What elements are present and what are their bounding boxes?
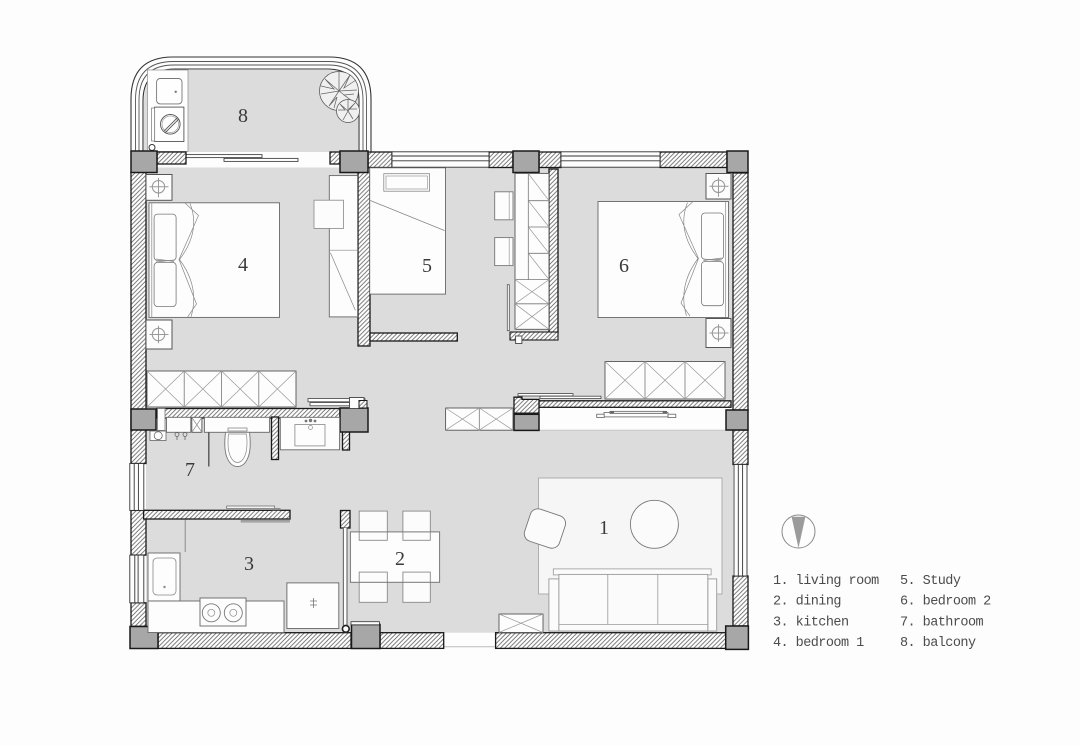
svg-text:2: 2	[395, 548, 405, 570]
svg-text:1. living room: 1. living room	[773, 574, 879, 589]
svg-text:1: 1	[599, 517, 609, 539]
svg-text:6: 6	[619, 255, 629, 277]
svg-text:8: 8	[238, 105, 248, 127]
svg-text:7. bathroom: 7. bathroom	[900, 615, 984, 630]
svg-text:3. kitchen: 3. kitchen	[773, 615, 849, 630]
svg-text:6. bedroom 2: 6. bedroom 2	[900, 595, 991, 610]
svg-text:5. Study: 5. Study	[900, 574, 961, 589]
svg-text:7: 7	[185, 459, 195, 481]
svg-text:8. balcony: 8. balcony	[900, 636, 976, 651]
svg-text:4. bedroom 1: 4. bedroom 1	[773, 636, 864, 651]
svg-text:3: 3	[244, 553, 254, 575]
svg-text:2. dining: 2. dining	[773, 595, 841, 610]
svg-text:4: 4	[238, 254, 248, 276]
svg-text:5: 5	[422, 255, 432, 277]
